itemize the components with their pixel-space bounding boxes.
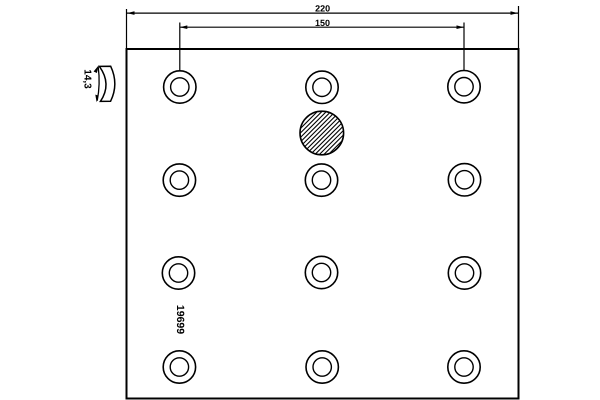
svg-text:150: 150 (315, 18, 330, 28)
svg-text:220: 220 (315, 3, 330, 13)
svg-text:14,3: 14,3 (82, 69, 93, 89)
svg-text:19699: 19699 (174, 305, 186, 334)
